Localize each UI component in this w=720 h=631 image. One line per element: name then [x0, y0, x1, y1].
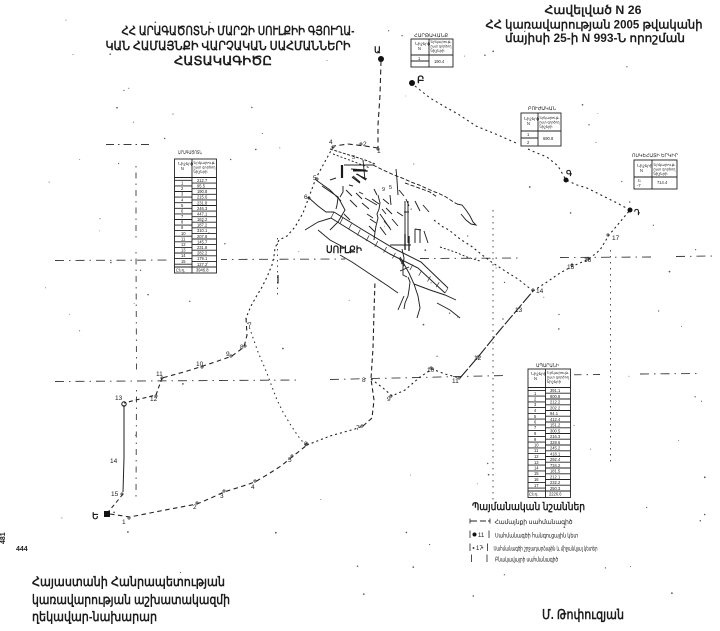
- svg-text:Մ. Թոփուզյան: Մ. Թոփուզյան: [542, 607, 624, 623]
- svg-text:212.7: 212.7: [197, 178, 208, 183]
- svg-text:4: 4: [329, 139, 333, 146]
- svg-text:15: 15: [181, 259, 186, 264]
- svg-text:նիշերի: նիշերի: [430, 48, 445, 53]
- svg-text:ՍՈՒԼՔԻ: ՍՈՒԼՔԻ: [326, 245, 362, 256]
- svg-text:11: 11: [534, 448, 539, 453]
- svg-text:11: 11: [181, 236, 186, 241]
- svg-text:ՀՀ կառավարության 2005 թվականի: ՀՀ կառավարության 2005 թվականի: [486, 18, 703, 32]
- svg-text:10: 10: [534, 443, 539, 448]
- svg-text:5: 5: [288, 457, 292, 464]
- svg-text:215.6: 215.6: [197, 195, 208, 200]
- svg-text:328.6: 328.6: [550, 440, 561, 445]
- svg-text:ԱՊԱՐԱՆԻ: ԱՊԱՐԱՆԻ: [536, 363, 559, 369]
- svg-text:216.3: 216.3: [550, 434, 561, 439]
- svg-text:412.4: 412.4: [550, 417, 561, 422]
- svg-text:10: 10: [196, 361, 204, 368]
- svg-text:17: 17: [534, 483, 539, 488]
- svg-text:15: 15: [111, 491, 119, 498]
- svg-text:N: N: [181, 166, 184, 171]
- svg-text:ԲՈՒԺԱԿԱՆ: ԲՈՒԺԱԿԱՆ: [528, 106, 556, 112]
- svg-text:13: 13: [534, 460, 539, 465]
- svg-text:212.2: 212.2: [550, 400, 561, 405]
- svg-text:13: 13: [181, 248, 186, 253]
- svg-text:2226.6: 2226.6: [549, 492, 562, 497]
- svg-text:246.3: 246.3: [197, 206, 208, 211]
- svg-text:212.1: 212.1: [550, 474, 561, 479]
- svg-text:12: 12: [181, 242, 186, 247]
- svg-text:N: N: [534, 376, 537, 381]
- svg-text:ղեկավար-նախարար: ղեկավար-նախարար: [32, 609, 157, 624]
- svg-text:14: 14: [181, 253, 186, 258]
- svg-text:Սահմանագծի շրջադարձային և միջա: Սահմանագծի շրջադարձային և միջանկյալ կետե…: [494, 546, 598, 553]
- svg-text:17: 17: [476, 546, 483, 552]
- svg-text:232.2: 232.2: [550, 480, 561, 485]
- svg-text:187.2: 187.2: [197, 223, 208, 228]
- svg-text:13: 13: [515, 307, 523, 314]
- svg-text:190.4: 190.4: [434, 59, 445, 64]
- svg-text:292.4: 292.4: [550, 457, 561, 462]
- svg-text:10: 10: [427, 367, 435, 374]
- svg-text:Սահմանագծի հանգուցային կետ: Սահմանագծի հանգուցային կետ: [495, 533, 578, 540]
- svg-text:310.1: 310.1: [197, 228, 208, 233]
- svg-text:8: 8: [240, 344, 244, 351]
- svg-text:մայիսի 25-ի N 993-Ն որոշման: մայիսի 25-ի N 993-Ն որոշման: [505, 31, 685, 45]
- svg-text:N: N: [640, 168, 643, 173]
- svg-text:6: 6: [304, 194, 308, 201]
- svg-text:231.8: 231.8: [197, 245, 208, 250]
- svg-text:418.1: 418.1: [550, 451, 561, 456]
- svg-text:ԿԱՆ ՀԱՄԱՅՆՔԻ ՎԱՐՉԱԿԱՆ ՍԱՀՄԱՆՆԵ: ԿԱՆ ՀԱՄԱՅՆՔԻ ՎԱՐՉԱԿԱՆ ՍԱՀՄԱՆՆԵՐԻ: [106, 39, 351, 53]
- svg-text:կառավարության աշխատակազմի: կառավարության աշխատակազմի: [32, 592, 230, 607]
- svg-text:նիշերի: նիշերի: [193, 169, 208, 174]
- svg-text:14: 14: [110, 458, 118, 465]
- svg-text:Բ: Բ: [417, 75, 424, 86]
- svg-text:Համայնքի սահմանագիծ: Համայնքի սահմանագիծ: [495, 519, 573, 526]
- svg-text:նիշերի: նիշերի: [539, 124, 553, 129]
- svg-text:14: 14: [536, 288, 544, 295]
- svg-text:145.7: 145.7: [197, 239, 208, 244]
- svg-text:94.1: 94.1: [550, 411, 559, 416]
- svg-text:նիշերի: նիշերի: [546, 379, 561, 384]
- svg-text:95.5: 95.5: [197, 184, 206, 189]
- svg-text:231.8: 231.8: [197, 200, 208, 205]
- svg-text:Գ: Գ: [566, 169, 572, 178]
- svg-text:ՀԱՏԱԿԱԳԻԾԸ: ՀԱՏԱԿԱԳԻԾԸ: [174, 54, 272, 68]
- svg-text:Հայաստանի Հանրապետության: Հայաստանի Հանրապետության: [32, 574, 225, 589]
- svg-text:800.8: 800.8: [550, 394, 561, 399]
- svg-text:391.1: 391.1: [550, 388, 561, 393]
- svg-text:11: 11: [478, 533, 485, 539]
- svg-text:7: 7: [248, 322, 252, 329]
- svg-text:9: 9: [382, 187, 385, 193]
- svg-text:ՀՀ ԱՐԱԳԱԾՈՏՆԻ ՄԱՐԶԻ ՍՈՒԼՔԻԻ ԳՅ: ՀՀ ԱՐԱԳԱԾՈՏՆԻ ՄԱՐԶԻ ՍՈՒԼՔԻԻ ԳՅՈՒՂԱ-: [122, 24, 355, 38]
- svg-text:2: 2: [363, 141, 367, 148]
- svg-text:2: 2: [193, 504, 197, 511]
- svg-text:447.1: 447.1: [197, 212, 208, 217]
- svg-text:7: 7: [356, 425, 360, 432]
- svg-text:Ընդ.: Ընդ.: [176, 268, 185, 273]
- svg-text:N: N: [418, 46, 421, 51]
- svg-text:190.8: 190.8: [197, 189, 208, 194]
- svg-text:734.2: 734.2: [550, 463, 561, 468]
- svg-text:Դ: Դ: [634, 208, 640, 217]
- svg-text:N: N: [527, 121, 530, 126]
- svg-text:207.8: 207.8: [197, 234, 208, 239]
- svg-text:ԱՐԱԳԱԾՈՏՆ: ԱՐԱԳԱԾՈՏՆ: [178, 150, 202, 156]
- svg-text:300.5: 300.5: [550, 428, 561, 433]
- svg-text:181.5: 181.5: [550, 469, 561, 474]
- svg-text:Ա: Ա: [374, 45, 381, 55]
- svg-text:15: 15: [534, 471, 539, 476]
- svg-text:127.2: 127.2: [197, 262, 208, 267]
- svg-text:250.3: 250.3: [550, 486, 561, 491]
- svg-text:9: 9: [226, 351, 230, 358]
- svg-text:202.2: 202.2: [550, 405, 561, 410]
- svg-text:ՈՍԿԵՀԱՏԻ ԵՐԿԻՐ: ՈՍԿԵՀԱՏԻ ԵՐԿԻՐ: [632, 153, 678, 159]
- svg-text:Ընդ.: Ընդ.: [529, 492, 538, 497]
- svg-text:690.8: 690.8: [543, 136, 554, 141]
- svg-text:13: 13: [115, 395, 123, 402]
- svg-text:8: 8: [362, 377, 366, 384]
- svg-text:17: 17: [612, 235, 620, 242]
- svg-text:12: 12: [534, 454, 539, 459]
- svg-text:3946.8: 3946.8: [196, 268, 209, 273]
- svg-text:444: 444: [16, 546, 28, 553]
- svg-text:151.2: 151.2: [550, 423, 561, 428]
- svg-text:Պայմանական նշաններ: Պայմանական նշաններ: [472, 501, 585, 513]
- svg-text:481: 481: [0, 532, 7, 544]
- svg-text:14: 14: [534, 466, 539, 471]
- svg-text:282.2: 282.2: [197, 251, 208, 256]
- svg-text:179.1: 179.1: [197, 256, 208, 261]
- svg-text:Հավելված N 26: Հավելված N 26: [545, 3, 642, 17]
- svg-text:Ե: Ե: [92, 511, 99, 521]
- svg-text:714.4: 714.4: [657, 180, 668, 185]
- svg-text:4: 4: [251, 484, 255, 491]
- svg-text:նիշերի: նիշերի: [653, 171, 668, 176]
- svg-text:16: 16: [534, 477, 539, 482]
- svg-text:1: 1: [122, 519, 126, 526]
- svg-text:3: 3: [220, 493, 224, 500]
- svg-text:5: 5: [389, 185, 392, 191]
- svg-text:245.2: 245.2: [550, 446, 561, 451]
- svg-text:10: 10: [181, 231, 186, 236]
- svg-text:Բնակավայրի սահմանագիծ: Բնակավայրի սահմանագիծ: [495, 557, 558, 564]
- svg-text:3: 3: [352, 155, 355, 161]
